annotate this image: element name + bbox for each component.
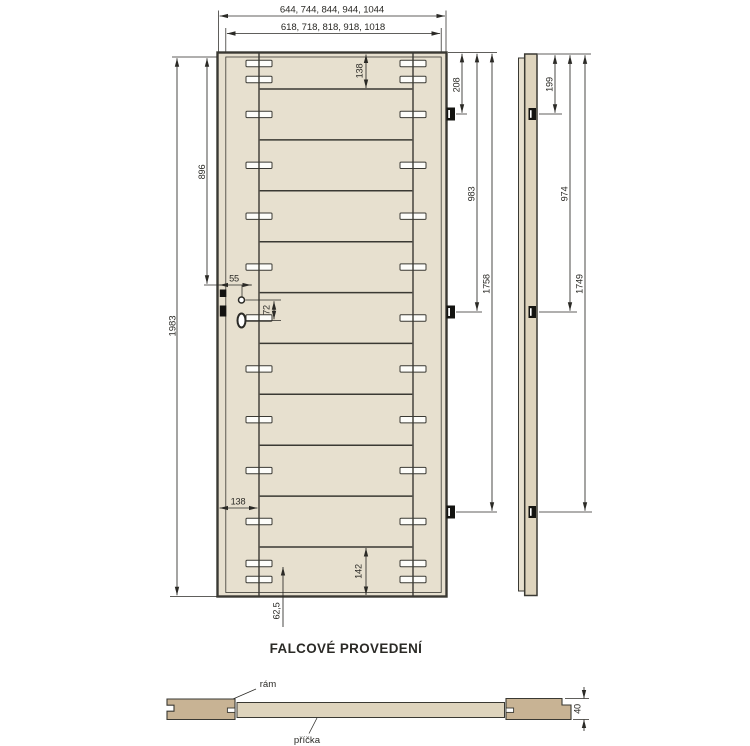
hinge-side bbox=[529, 108, 537, 120]
label-rail: příčka bbox=[294, 735, 321, 746]
door-technical-drawing: 644, 744, 844, 944, 1044 618, 718, 818, … bbox=[0, 0, 750, 746]
hinge-front-pin bbox=[448, 110, 450, 118]
dim-hinge1-front: 208 bbox=[452, 78, 462, 93]
dim-handle-to-cylinder: 72 bbox=[262, 305, 272, 315]
hinge-front bbox=[447, 506, 456, 519]
technical-drawing-page: 644, 744, 844, 944, 1044 618, 718, 818, … bbox=[0, 0, 750, 746]
dim-top-rail: 138 bbox=[355, 64, 365, 79]
dim-hinge1-side: 199 bbox=[545, 77, 555, 92]
dim-bottom-rail: 142 bbox=[354, 564, 364, 579]
front-hinges bbox=[447, 108, 456, 519]
hinge-side bbox=[529, 306, 537, 318]
dim-bottom-dowel-offset: 62,5 bbox=[272, 602, 282, 619]
hinge-front-pin bbox=[448, 308, 450, 316]
dim-hinge2-side: 974 bbox=[560, 187, 570, 202]
cross-section: rám příčka 40 bbox=[167, 679, 589, 746]
dim-width-outer: 644, 744, 844, 944, 1044 bbox=[280, 5, 385, 16]
dim-lock-backset: 55 bbox=[229, 274, 239, 284]
door-leaf-front bbox=[218, 53, 447, 597]
dim-hinge3-side: 1749 bbox=[575, 274, 585, 294]
dim-front-hinges: 208 983 1758 bbox=[448, 53, 497, 513]
hinge-front-pin bbox=[448, 508, 450, 516]
falc-lip-strip bbox=[519, 58, 525, 591]
section-frame-right bbox=[506, 699, 571, 720]
door-side-view bbox=[519, 54, 538, 596]
dim-width-inner: 618, 718, 818, 918, 1018 bbox=[281, 22, 385, 33]
door-front-view bbox=[218, 53, 456, 597]
label-frame: rám bbox=[260, 679, 277, 690]
hinge-side bbox=[529, 506, 537, 518]
hinge-front bbox=[447, 306, 456, 319]
dim-hinge3-front: 1758 bbox=[482, 274, 492, 294]
drawing-title: FALCOVÉ PROVEDENÍ bbox=[270, 641, 424, 656]
dim-top-widths: 644, 744, 844, 944, 1044 618, 718, 818, … bbox=[219, 5, 447, 52]
hinge-front bbox=[447, 108, 456, 121]
dim-hinge2-front: 983 bbox=[467, 187, 477, 202]
section-groove-right bbox=[506, 708, 514, 712]
hinge-side-pin bbox=[530, 308, 532, 316]
section-groove-left bbox=[227, 708, 235, 712]
handle-spindle-hole bbox=[239, 297, 245, 303]
section-rail-board bbox=[237, 703, 505, 718]
dim-total-height: 1983 bbox=[168, 316, 179, 337]
lock-latch-mark bbox=[220, 290, 227, 298]
section-frame-left bbox=[167, 699, 235, 720]
dim-side-hinges: 199 974 1749 bbox=[538, 54, 592, 512]
hinge-side-pin bbox=[530, 508, 532, 516]
dim-stile-width: 138 bbox=[231, 497, 246, 507]
hinge-side-pin bbox=[530, 110, 532, 118]
cylinder-hole bbox=[238, 314, 246, 328]
dim-handle-height: 896 bbox=[197, 165, 207, 180]
lock-bolt-mark bbox=[220, 306, 227, 317]
dim-thickness: 40 bbox=[573, 704, 583, 714]
